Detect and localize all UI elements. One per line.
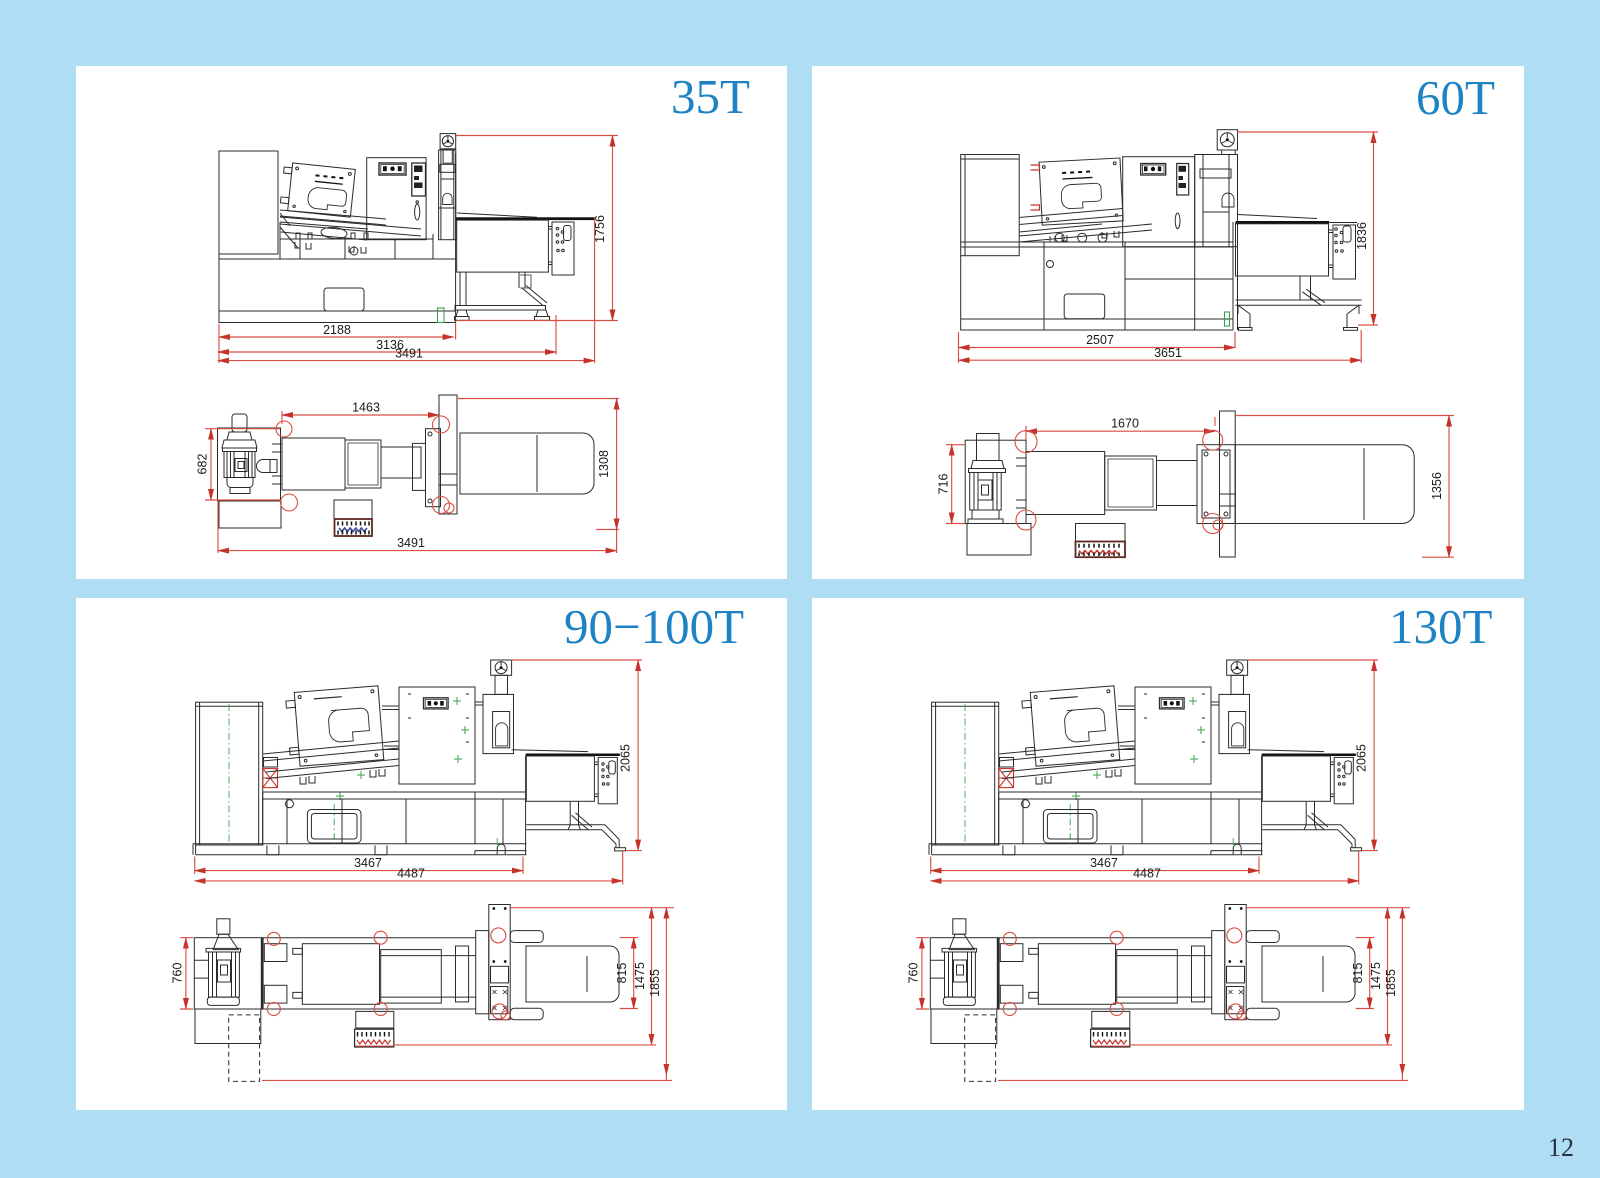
svg-text:1463: 1463 [352,401,380,415]
svg-text:682: 682 [196,454,210,475]
svg-text:3651: 3651 [1154,346,1182,360]
svg-text:1836: 1836 [1355,222,1369,250]
svg-text:2507: 2507 [1086,333,1114,347]
svg-text:1308: 1308 [597,450,611,478]
svg-text:1670: 1670 [1111,417,1139,431]
svg-text:3491: 3491 [395,347,423,361]
svg-text:3491: 3491 [397,536,425,550]
svg-text:716: 716 [937,474,951,495]
svg-text:2188: 2188 [323,323,351,337]
svg-text:1356: 1356 [1430,472,1444,500]
